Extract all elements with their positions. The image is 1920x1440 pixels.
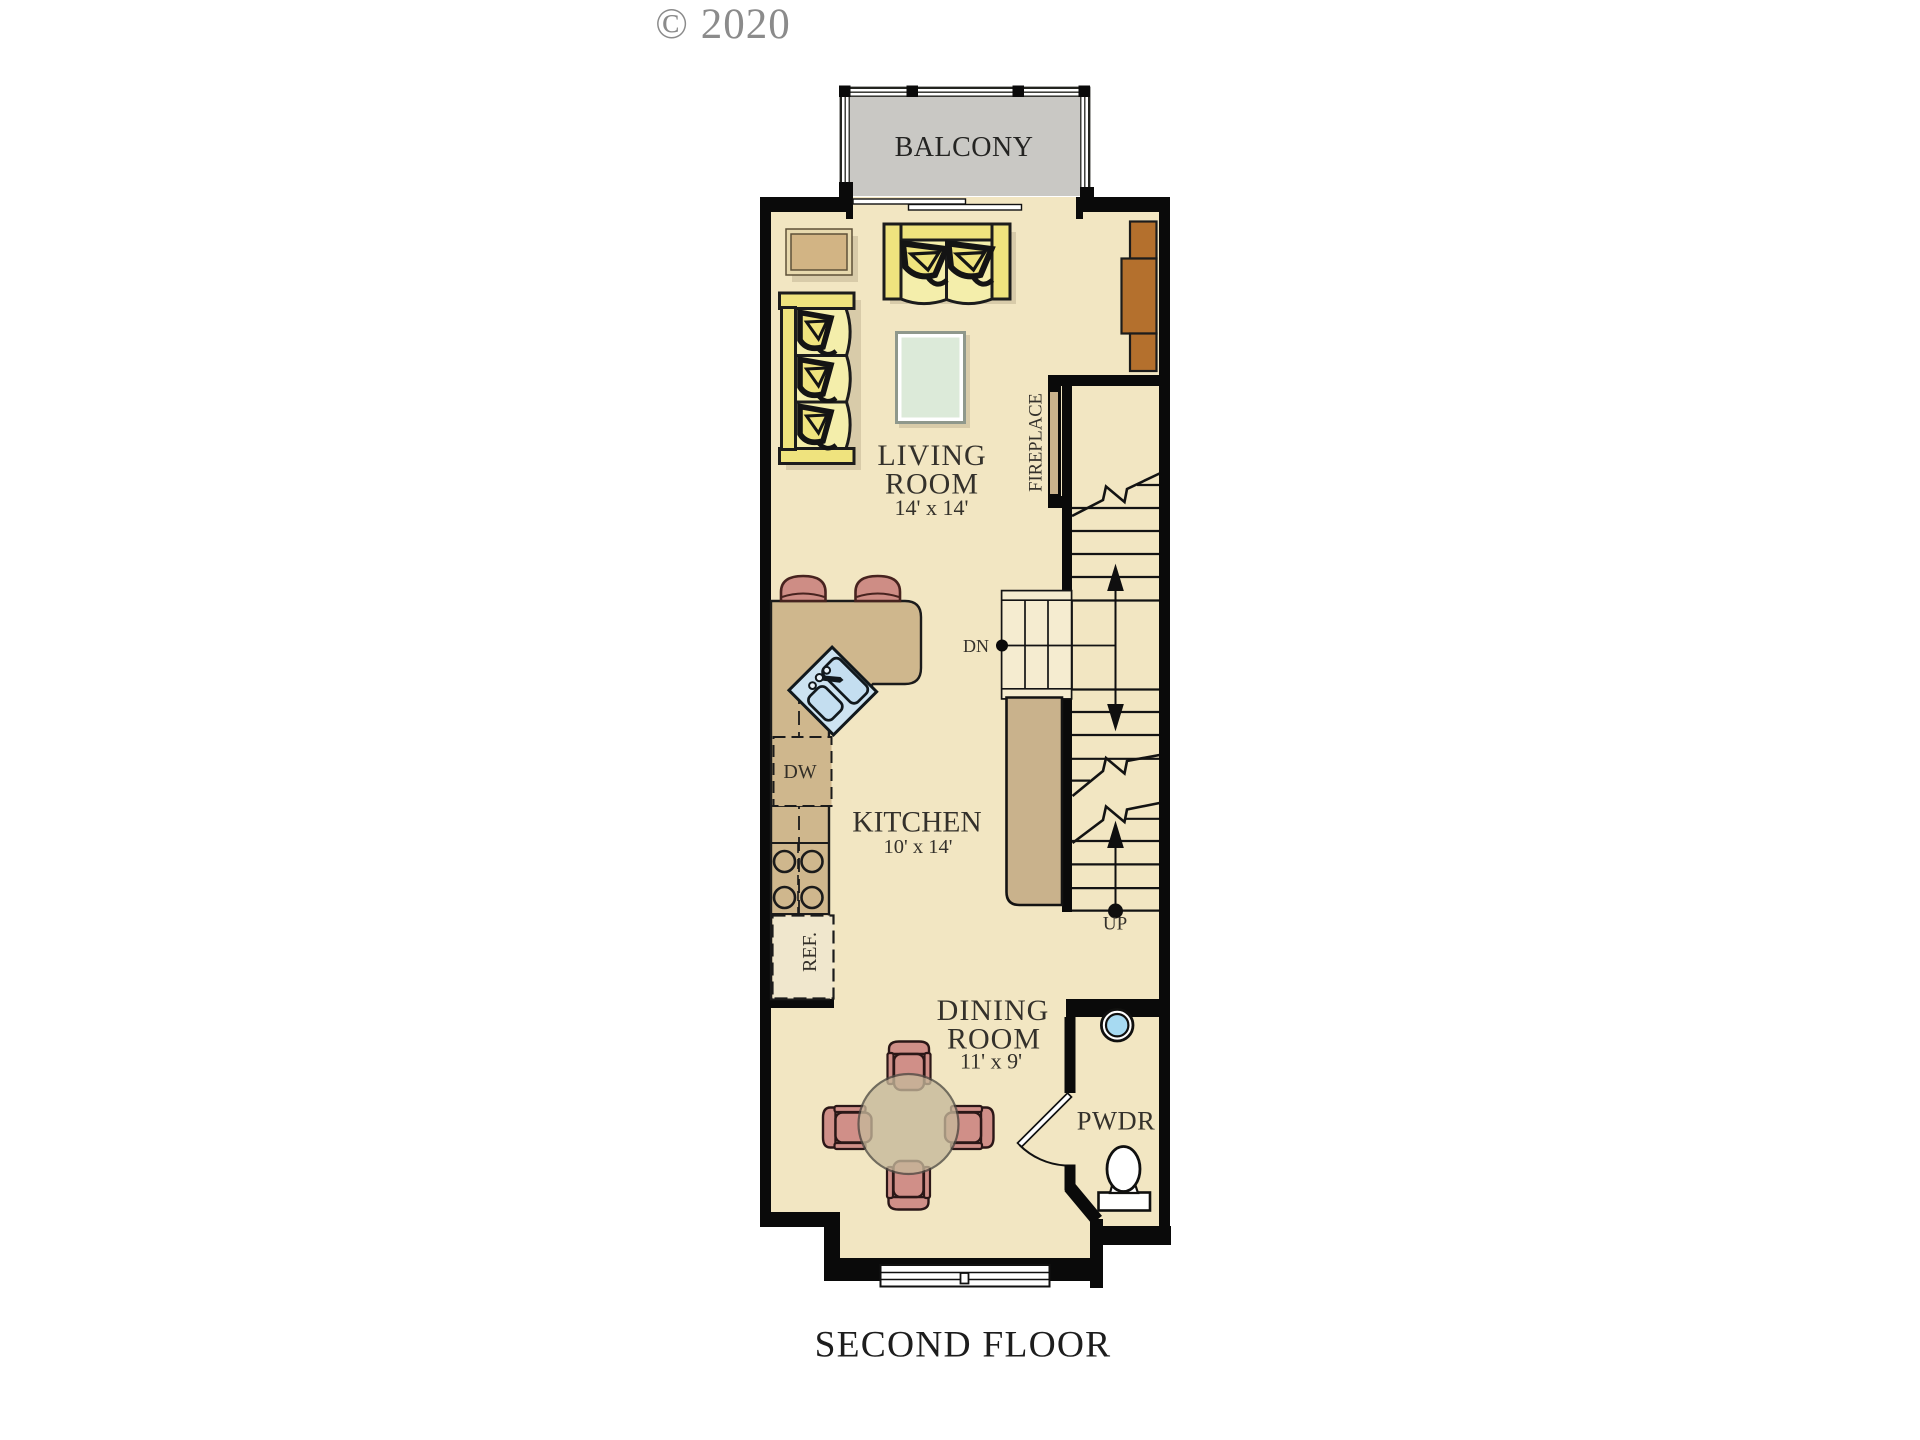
svg-text:11' x 9': 11' x 9' <box>960 1049 1022 1074</box>
svg-text:DN: DN <box>963 636 989 656</box>
svg-text:KITCHEN: KITCHEN <box>852 807 981 839</box>
svg-text:REF.: REF. <box>799 932 821 972</box>
svg-text:UP: UP <box>1103 914 1127 935</box>
svg-text:10' x 14': 10' x 14' <box>884 836 953 858</box>
svg-text:© 2020: © 2020 <box>655 1 790 48</box>
svg-text:SECOND FLOOR: SECOND FLOOR <box>815 1325 1112 1366</box>
svg-text:FIREPLACE: FIREPLACE <box>1027 393 1047 492</box>
svg-text:PWDR: PWDR <box>1077 1106 1156 1136</box>
svg-text:DW: DW <box>783 761 816 783</box>
svg-text:14' x 14': 14' x 14' <box>895 495 969 520</box>
svg-text:BALCONY: BALCONY <box>895 132 1034 163</box>
